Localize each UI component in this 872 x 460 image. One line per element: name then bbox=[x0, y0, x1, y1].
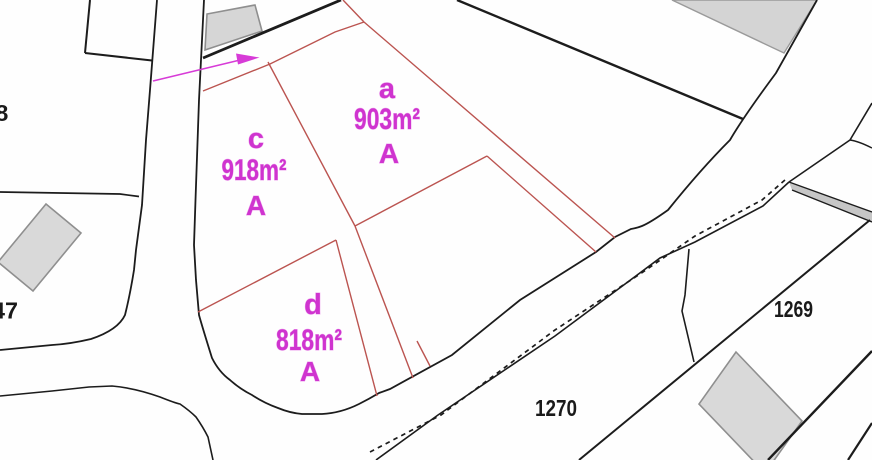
svg-text:8: 8 bbox=[0, 100, 9, 126]
svg-text:A: A bbox=[379, 138, 399, 169]
svg-text:47: 47 bbox=[0, 298, 18, 324]
svg-text:1270: 1270 bbox=[535, 395, 577, 421]
svg-text:818m²: 818m² bbox=[276, 324, 342, 357]
svg-text:1269: 1269 bbox=[774, 296, 813, 322]
svg-text:A: A bbox=[300, 356, 320, 387]
svg-text:a: a bbox=[379, 73, 396, 105]
svg-text:d: d bbox=[304, 289, 322, 321]
svg-text:903m²: 903m² bbox=[354, 103, 420, 136]
svg-text:918m²: 918m² bbox=[222, 154, 287, 187]
svg-text:A: A bbox=[246, 190, 266, 221]
svg-text:c: c bbox=[248, 123, 264, 155]
